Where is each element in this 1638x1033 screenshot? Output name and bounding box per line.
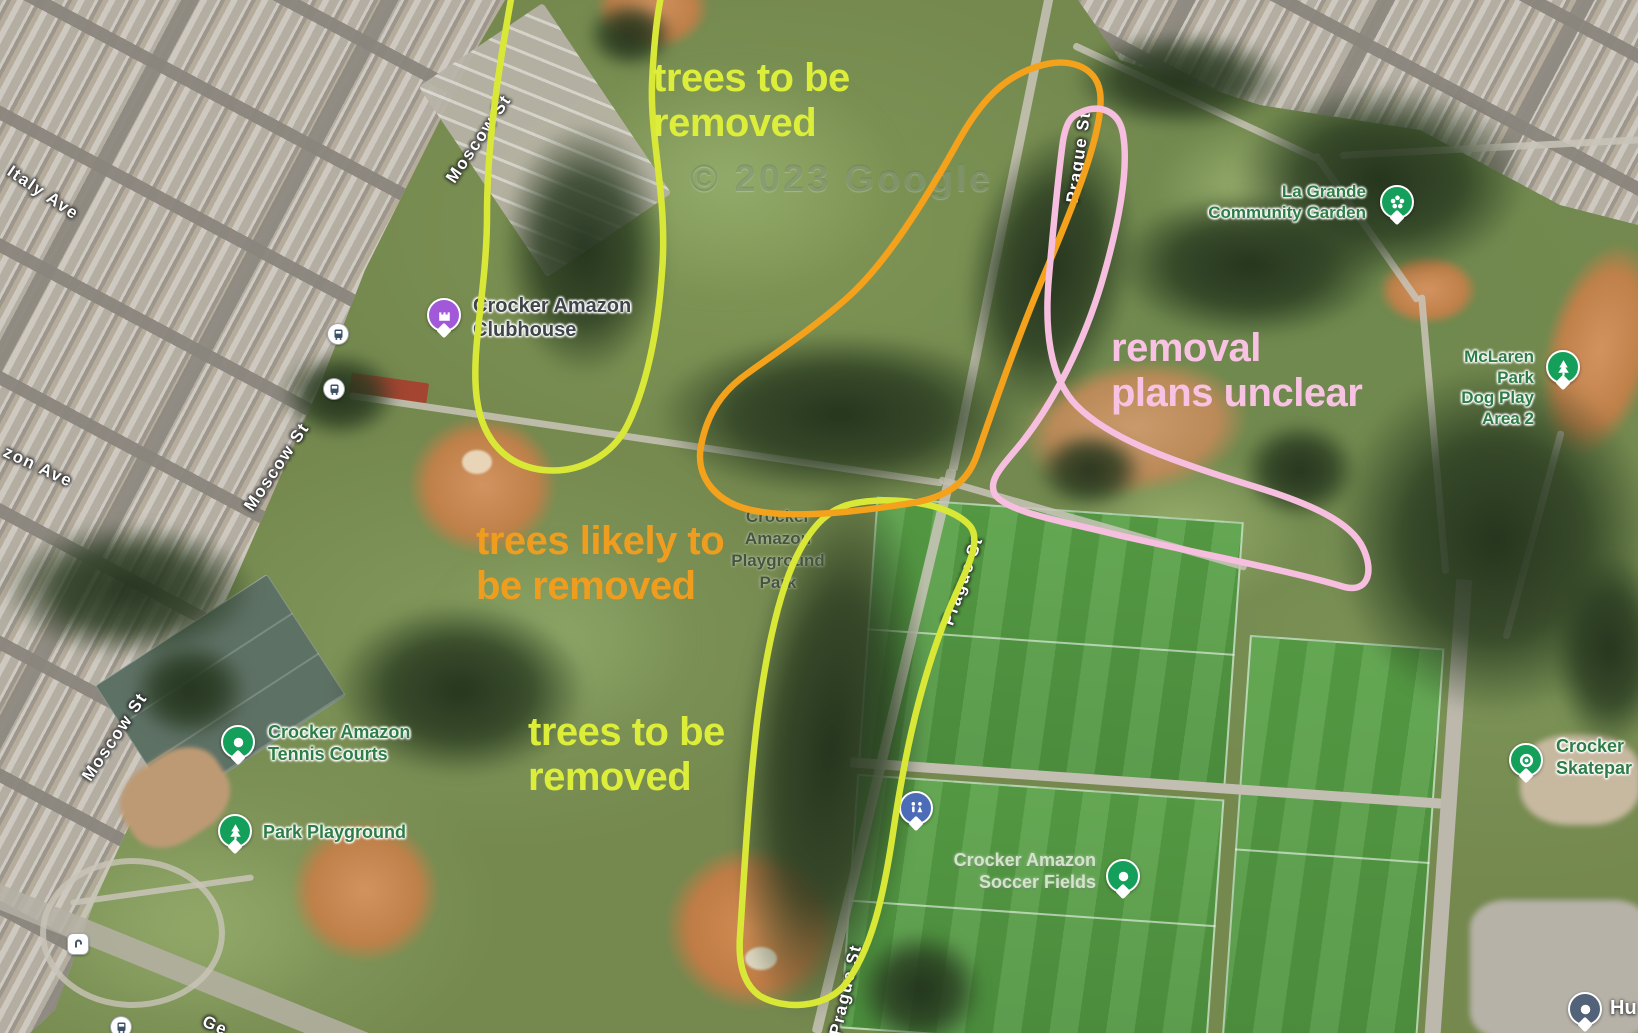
map-watermark: © 2023 Google xyxy=(690,158,994,201)
tree-icon xyxy=(226,822,245,841)
poi-label-tennis-courts[interactable]: Crocker Amazon Tennis Courts xyxy=(268,722,410,766)
dog-play-area-pin[interactable] xyxy=(1546,350,1580,384)
park-playground-pin[interactable] xyxy=(218,814,252,848)
poi-label-community-garden[interactable]: La Grande Community Garden xyxy=(1208,182,1366,223)
bus-icon xyxy=(115,1021,128,1033)
bus-stop-icon[interactable] xyxy=(110,1016,132,1033)
fountain-icon xyxy=(72,938,85,951)
tree-icon xyxy=(1554,358,1573,377)
tree-cluster xyxy=(1240,420,1360,520)
poi-label-soccer-fields[interactable]: Crocker Amazon Soccer Fields xyxy=(954,850,1096,894)
annotation-text-trees-likely: trees likely to be removed xyxy=(476,519,724,609)
clubhouse-icon xyxy=(435,306,454,325)
poi-label-park-name[interactable]: Crocker Amazon Playground Park xyxy=(731,506,825,594)
dot-icon xyxy=(229,733,248,752)
annotation-text-trees-removed-top: trees to be removed xyxy=(653,56,850,146)
flower-icon xyxy=(1388,193,1407,212)
community-garden-pin[interactable] xyxy=(1380,185,1414,219)
skatepark-pin[interactable] xyxy=(1509,743,1543,777)
bus-stop-icon[interactable] xyxy=(323,378,345,400)
dot-icon xyxy=(1576,1000,1595,1019)
ring-icon xyxy=(1517,751,1536,770)
tree-cluster xyxy=(1035,430,1145,510)
playground-path-loop xyxy=(40,858,225,1008)
tennis-courts-pin[interactable] xyxy=(221,725,255,759)
satellite-map-canvas[interactable]: © 2023 Google Italy Ave zon Ave Moscow S… xyxy=(0,0,1638,1033)
restroom-pin[interactable] xyxy=(899,791,933,825)
poi-label-dog-play-area[interactable]: McLaren Park Dog Play Area 2 xyxy=(1430,347,1534,430)
poi-label-park-playground[interactable]: Park Playground xyxy=(263,822,406,844)
tree-cluster xyxy=(1070,30,1290,130)
poi-misc-icon[interactable] xyxy=(67,933,89,955)
tree-cluster xyxy=(0,520,260,660)
soccer-fields-pin[interactable] xyxy=(1106,859,1140,893)
annotation-text-trees-removed-bottom: trees to be removed xyxy=(528,710,725,800)
bus-stop-icon[interactable] xyxy=(327,323,349,345)
clubhouse-pin[interactable] xyxy=(427,298,461,332)
annotation-text-removal-unclear: removal plans unclear xyxy=(1111,326,1362,416)
poi-label-skatepark[interactable]: Crocker Skatepar xyxy=(1556,736,1632,780)
restroom-icon xyxy=(907,799,926,818)
hu-pin[interactable] xyxy=(1568,992,1602,1026)
bus-icon xyxy=(328,383,341,396)
poi-label-clubhouse[interactable]: Crocker Amazon Clubhouse xyxy=(473,294,631,343)
poi-label-hu[interactable]: Hu xyxy=(1610,996,1637,1020)
dot-icon xyxy=(1114,867,1133,886)
bus-icon xyxy=(332,328,345,341)
pitchers-mound xyxy=(462,450,492,474)
